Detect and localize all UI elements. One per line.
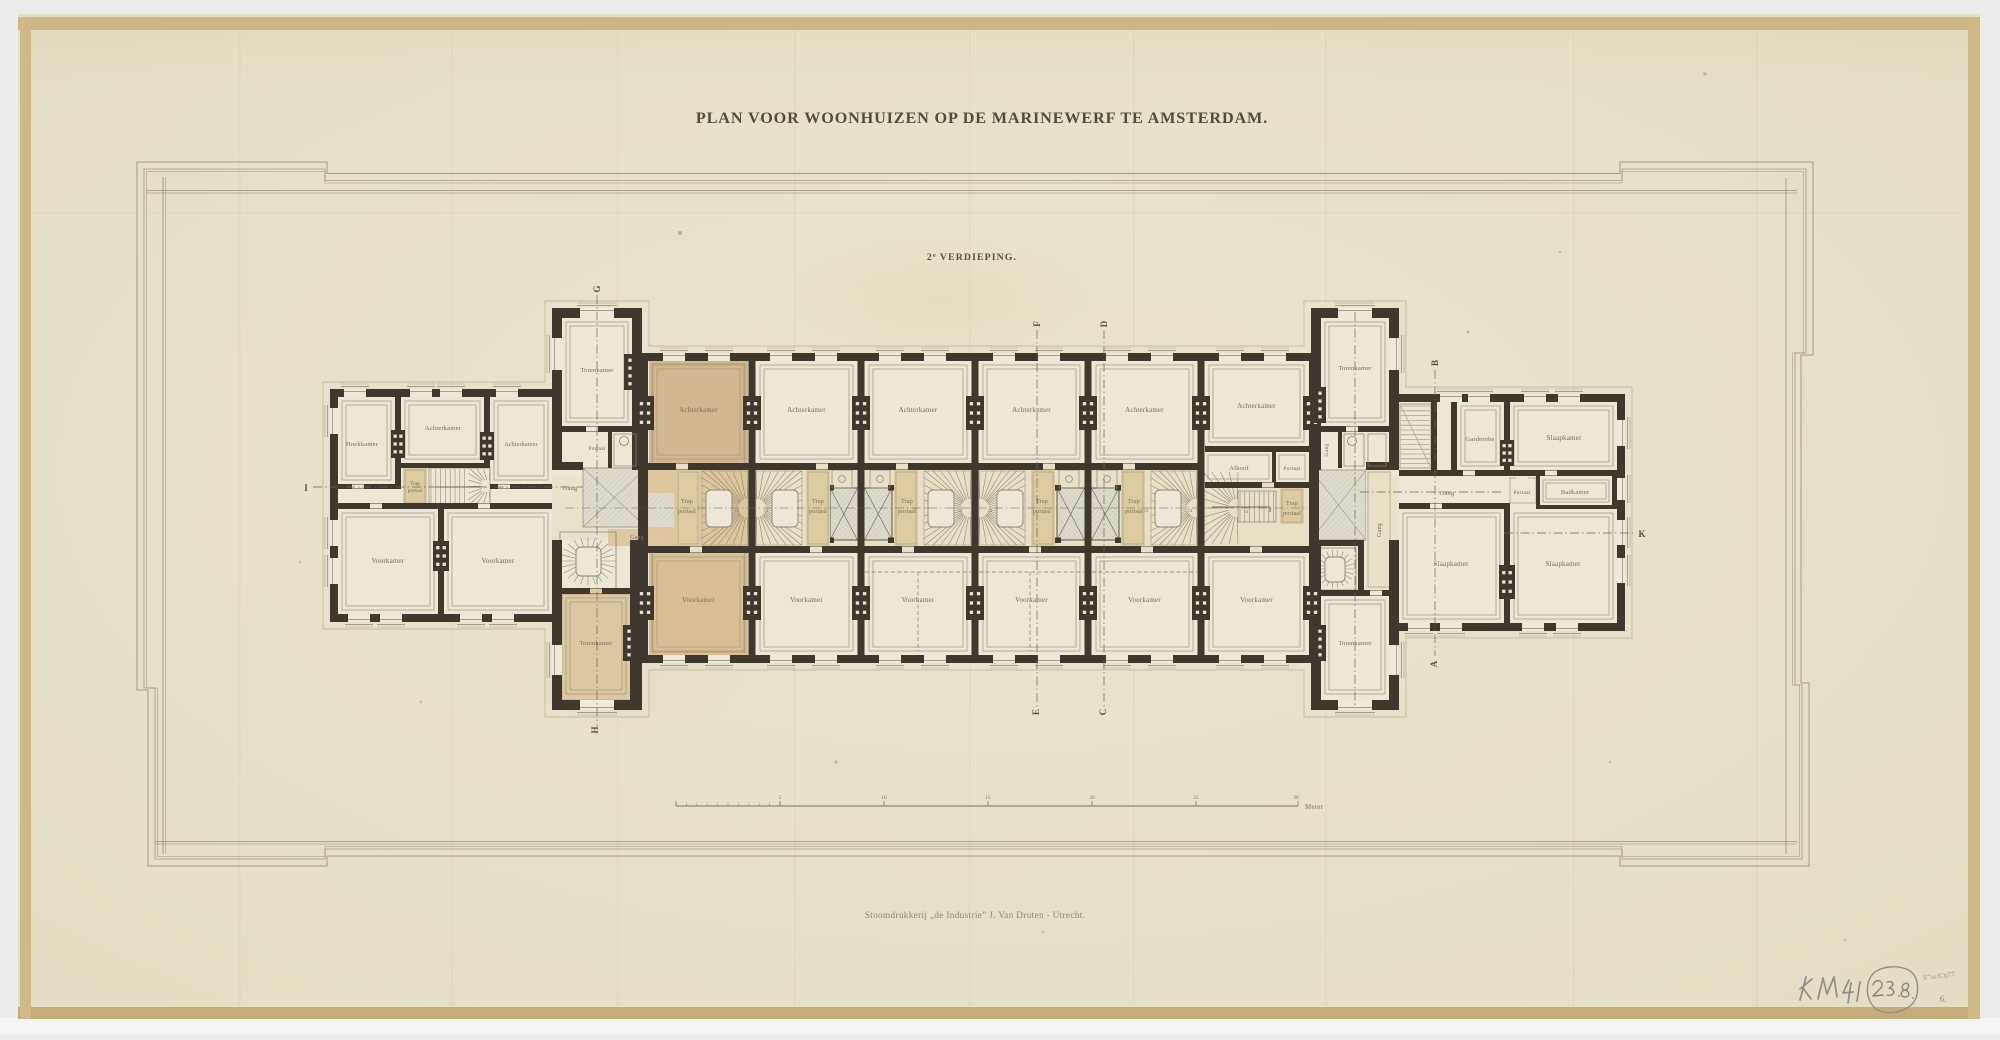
svg-text:Slaapkamer: Slaapkamer: [1433, 560, 1469, 568]
svg-text:14: 14: [735, 508, 740, 513]
svg-text:Achterkamer: Achterkamer: [425, 425, 462, 432]
svg-text:Portaal: Portaal: [589, 446, 606, 452]
svg-text:10: 10: [881, 795, 887, 801]
svg-text:Stoomdrukkerij „de Industrie”: Stoomdrukkerij „de Industrie” J. Van Dru…: [865, 910, 1086, 920]
svg-text:Slaapkamer: Slaapkamer: [1545, 560, 1581, 568]
svg-text:14: 14: [988, 508, 993, 513]
svg-text:Voorkamer: Voorkamer: [482, 557, 515, 565]
svg-text:D: D: [1099, 320, 1109, 327]
svg-text:14: 14: [958, 508, 963, 513]
svg-text:Voorkamer: Voorkamer: [902, 597, 935, 604]
svg-text:Trap: Trap: [410, 482, 420, 487]
svg-text:I: I: [304, 483, 308, 493]
svg-text:30: 30: [1293, 795, 1299, 801]
svg-text:Gang: Gang: [1324, 443, 1330, 456]
svg-text:PLAN VOOR WOONHUIZEN OP DE MAR: PLAN VOOR WOONHUIZEN OP DE MARINEWERF TE…: [696, 109, 1268, 127]
svg-text:5: 5: [779, 795, 782, 801]
svg-text:Achterkamer: Achterkamer: [1237, 403, 1276, 410]
svg-text:Gang: Gang: [630, 535, 644, 541]
svg-text:6.: 6.: [1940, 994, 1947, 1004]
svg-text:portaal: portaal: [678, 509, 696, 515]
svg-text:20: 20: [1089, 795, 1095, 801]
svg-text:Voorkamer: Voorkamer: [1015, 597, 1048, 604]
svg-text:Slaapkamer: Slaapkamer: [1546, 434, 1582, 442]
svg-text:portaal: portaal: [1283, 511, 1301, 517]
svg-text:Achterkamer: Achterkamer: [787, 407, 826, 414]
svg-text:portaal: portaal: [809, 509, 827, 515]
svg-text:Trap: Trap: [1128, 499, 1140, 505]
svg-text:Alkoof: Alkoof: [1229, 465, 1249, 472]
svg-text:portaal: portaal: [1033, 509, 1051, 515]
svg-text:portaal: portaal: [408, 489, 423, 494]
svg-text:Torenkamer: Torenkamer: [579, 640, 613, 647]
svg-text:Achterkamer: Achterkamer: [899, 407, 938, 414]
svg-text:Portaal: Portaal: [1514, 490, 1531, 496]
svg-text:Trap: Trap: [812, 499, 824, 505]
svg-text:Hoekkamer: Hoekkamer: [346, 441, 379, 448]
svg-text:Torenkamer: Torenkamer: [580, 367, 614, 374]
svg-text:Garderobe: Garderobe: [1465, 436, 1494, 443]
svg-text:H: H: [590, 726, 600, 733]
svg-text:14: 14: [1244, 509, 1249, 514]
svg-text:Achterkamer: Achterkamer: [504, 442, 538, 448]
svg-text:E: E: [1031, 709, 1041, 715]
svg-text:2eVERDIEPING.: 2eVERDIEPING.: [927, 252, 1017, 263]
svg-text:25: 25: [1193, 795, 1199, 801]
svg-text:Portaal: Portaal: [1284, 466, 1301, 472]
svg-text:14: 14: [764, 508, 769, 513]
svg-text:Trap: Trap: [1286, 501, 1298, 507]
svg-text:14: 14: [1188, 508, 1193, 513]
svg-text:14: 14: [1144, 508, 1149, 513]
svg-text:Achterkamer: Achterkamer: [1012, 407, 1051, 414]
svg-text:K: K: [1638, 529, 1645, 539]
svg-text:G: G: [592, 285, 602, 292]
svg-text:Gang: Gang: [563, 485, 578, 492]
svg-text:Voorkamer: Voorkamer: [1128, 597, 1161, 604]
svg-text:B: B: [1430, 360, 1440, 366]
svg-text:Voorkamer: Voorkamer: [790, 597, 823, 604]
svg-text:15: 15: [985, 795, 991, 801]
svg-text:Trap: Trap: [681, 499, 693, 505]
svg-text:A: A: [1429, 660, 1439, 667]
svg-text:Torenkamer: Torenkamer: [1338, 365, 1372, 372]
svg-text:Badkamer: Badkamer: [1561, 489, 1590, 496]
svg-text:Torenkamer: Torenkamer: [1338, 640, 1372, 647]
svg-text:Trap: Trap: [901, 499, 913, 505]
svg-text:Voorkamer: Voorkamer: [1240, 597, 1273, 604]
svg-text:Gang: Gang: [1440, 490, 1455, 497]
svg-text:Voorkamer: Voorkamer: [682, 597, 715, 604]
svg-text:Meter: Meter: [1305, 803, 1324, 811]
svg-text:portaal: portaal: [1125, 509, 1143, 515]
svg-text:portaal: portaal: [898, 509, 916, 515]
svg-text:Achterkamer: Achterkamer: [679, 407, 718, 414]
svg-text:C: C: [1098, 709, 1108, 716]
svg-text:Gang: Gang: [1377, 523, 1383, 537]
svg-text:Trap: Trap: [1036, 499, 1048, 505]
svg-text:Voorkamer: Voorkamer: [372, 557, 405, 565]
svg-text:Achterkamer: Achterkamer: [1125, 407, 1164, 414]
svg-text:F: F: [1032, 321, 1042, 327]
